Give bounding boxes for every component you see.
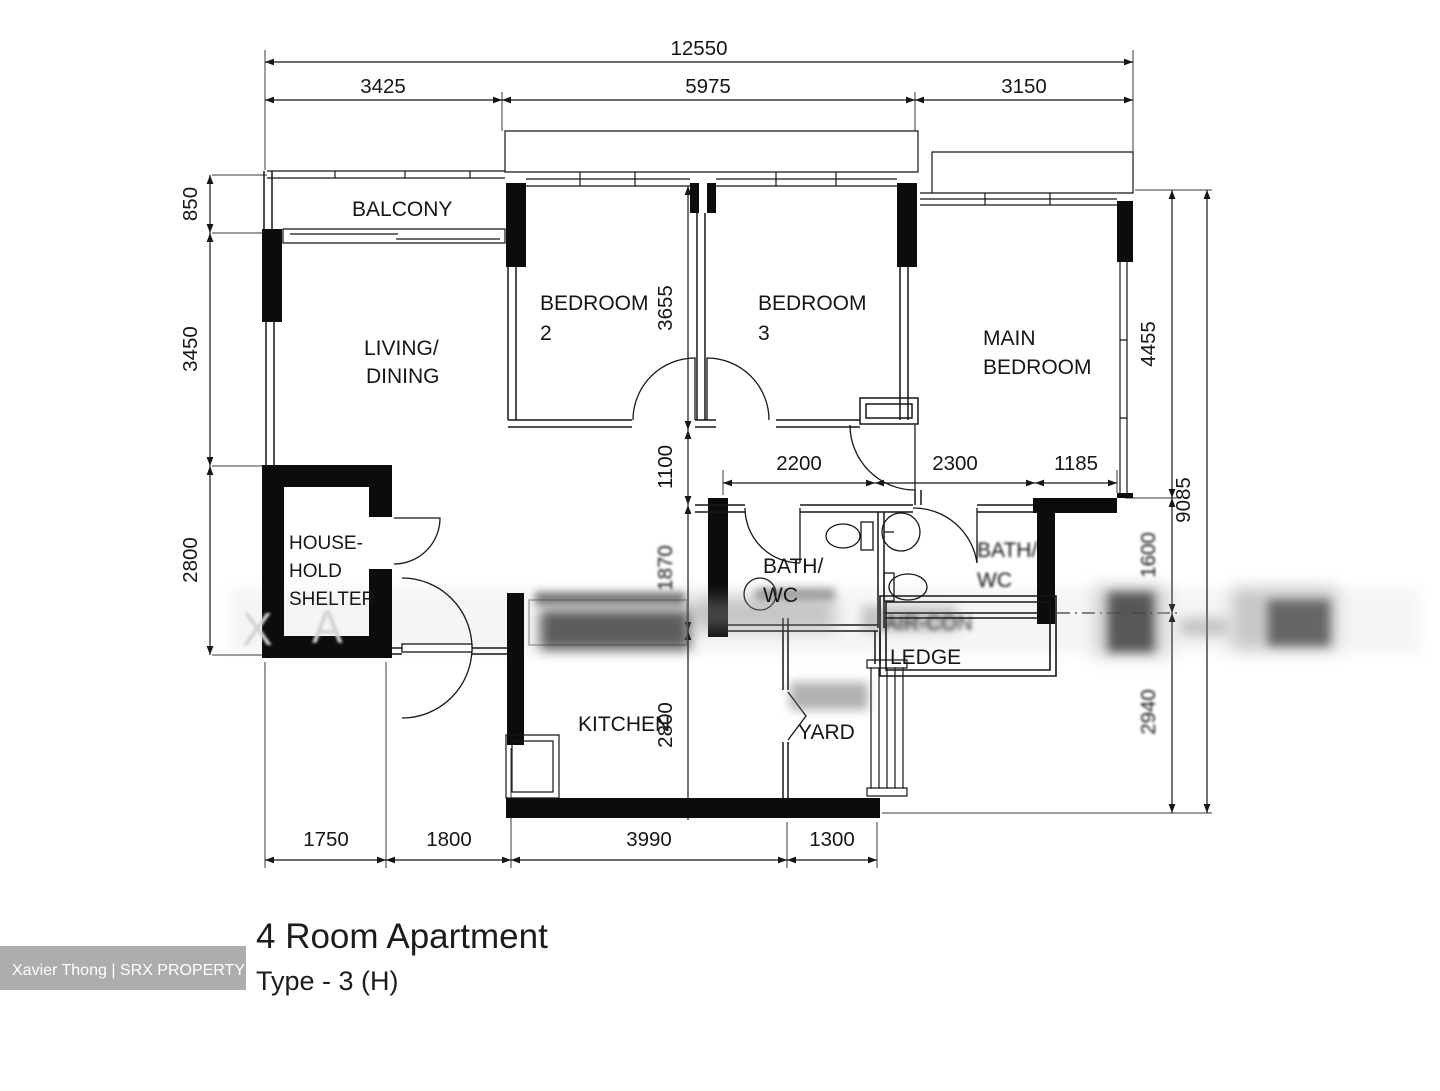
label-shelter-3: SHELTER <box>289 589 375 610</box>
label-living-1: LIVING/ <box>364 337 439 360</box>
dim-text-left-3: 2800 <box>179 537 202 583</box>
label-main-bedroom-1: MAIN <box>983 327 1036 350</box>
plan-title: 4 Room Apartment <box>256 917 548 956</box>
dim-text-mid-1: 3655 <box>654 285 677 331</box>
dim-text-top-1: 3425 <box>360 75 406 98</box>
smudge-yard-label <box>790 682 868 710</box>
label-aircon-ledge-1: AIR-CON <box>884 612 973 635</box>
label-bath1-1: BATH/ <box>763 555 823 578</box>
dim-text-bottom-3: 3990 <box>626 828 672 851</box>
dim-text-mid-4: 2800 <box>654 702 677 748</box>
credit-text: Xavier Thong | SRX PROPERTY <box>12 962 245 979</box>
smudge-right-faint <box>1180 618 1228 636</box>
dim-text-mid-2: 1100 <box>654 445 677 489</box>
label-shelter-1: HOUSE- <box>289 533 363 554</box>
toilet-bath1 <box>826 524 860 548</box>
label-balcony: BALCONY <box>352 198 452 221</box>
dim-text-top-total: 12550 <box>670 37 727 60</box>
dim-text-bottom-2: 1800 <box>426 828 472 851</box>
dim-text-bottom-1: 1750 <box>303 828 349 851</box>
door-swings <box>394 358 977 740</box>
smudge-kitchen-1 <box>535 592 685 605</box>
label-bedroom3-2: 3 <box>758 322 770 345</box>
label-bath2-2: WC <box>977 569 1012 592</box>
dim-text-top-3: 3150 <box>1001 75 1047 98</box>
dim-text-right-1: 4455 <box>1137 321 1160 367</box>
dim-text-mid-3: 1870 <box>654 545 677 591</box>
plan-subtitle: Type - 3 (H) <box>256 966 399 996</box>
label-bedroom3-1: BEDROOM <box>758 292 867 315</box>
label-bedroom2-2: 2 <box>540 322 552 345</box>
dim-text-right-total: 9085 <box>1172 477 1195 523</box>
windows <box>267 131 1133 798</box>
dim-text-corridor-1: 2200 <box>776 452 822 475</box>
dim-text-bottom-4: 1300 <box>809 828 855 851</box>
label-main-bedroom-2: BEDROOM <box>983 356 1092 379</box>
toilet-cistern-bath1 <box>861 522 873 550</box>
label-shelter-2: HOLD <box>289 561 342 582</box>
dim-text-left-2: 3450 <box>179 326 202 372</box>
dimension-labels: 12550 3425 5975 3150 850 3450 2800 3655 … <box>179 37 1195 851</box>
watermark-letter-x: X <box>242 603 273 655</box>
dim-text-corridor-3: 1185 <box>1054 452 1098 475</box>
dim-text-corridor-2: 2300 <box>932 452 978 475</box>
dim-text-right-2: 1600 <box>1137 532 1160 578</box>
label-living-2: DINING <box>366 365 440 388</box>
label-bath2-1: BATH/ <box>977 539 1037 562</box>
label-bedroom2-1: BEDROOM <box>540 292 649 315</box>
entrance-door-leaf <box>402 644 472 652</box>
dim-text-left-1: 850 <box>179 187 202 221</box>
dim-text-top-2: 5975 <box>685 75 731 98</box>
dim-text-right-3: 2940 <box>1137 689 1160 735</box>
floor-plan-drawing: X A BALCONY LIVING/ DINING BEDROOM 2 BED… <box>0 0 1440 1091</box>
label-yard: YARD <box>798 721 855 744</box>
label-aircon-ledge-2: LEDGE <box>890 646 961 669</box>
smudge-right-dark-2 <box>1268 600 1330 646</box>
floor-plan-page: X A BALCONY LIVING/ DINING BEDROOM 2 BED… <box>0 0 1440 1091</box>
label-bath1-2: WC <box>763 584 798 607</box>
smudge-right-dark-1 <box>1108 592 1154 652</box>
smudge-kitchen-2 <box>540 610 690 650</box>
